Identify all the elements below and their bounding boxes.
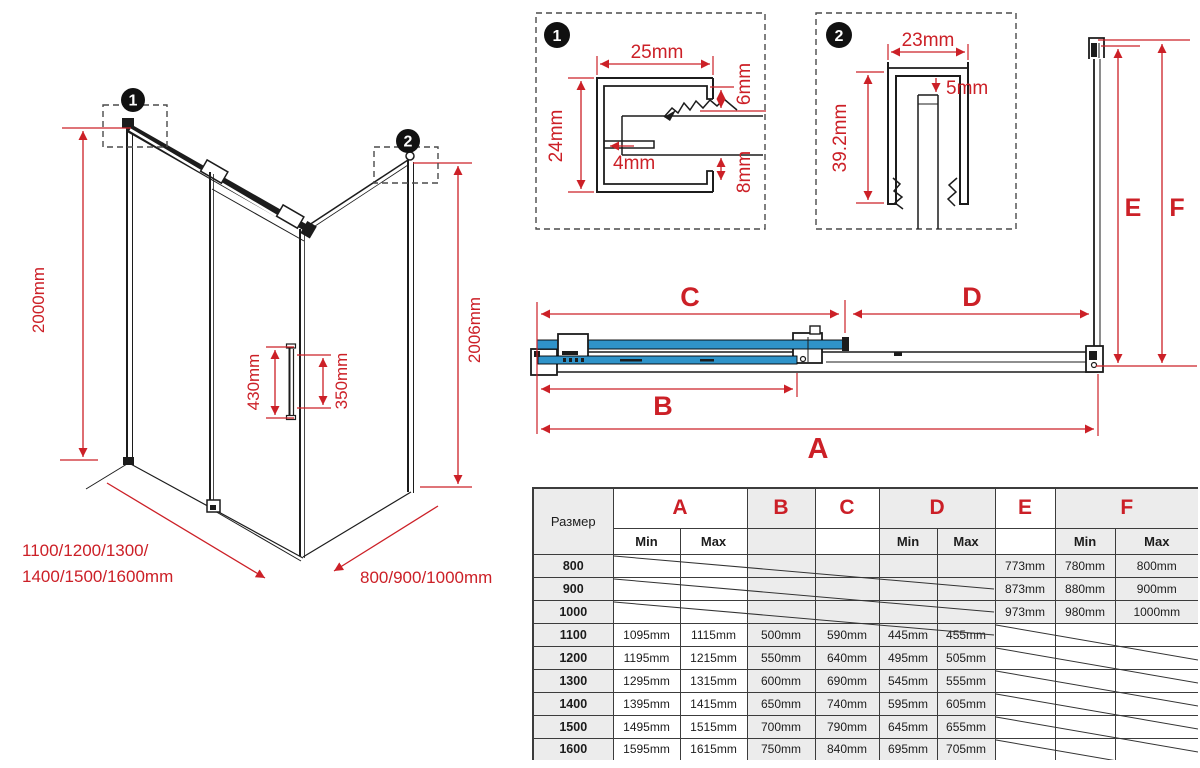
value-cell: 705mm (937, 738, 995, 760)
value-cell (995, 692, 1055, 715)
value-cell: 455mm (937, 623, 995, 646)
dim-d-label: D (962, 282, 982, 312)
size-label-cell: 1100 (533, 623, 613, 646)
value-cell: 495mm (879, 646, 937, 669)
value-cell: 1395mm (613, 692, 680, 715)
value-cell: 590mm (815, 623, 879, 646)
spec-table: Размер A B C D E F Min Max Min Max Min M… (532, 487, 1198, 760)
b-subheader (747, 528, 815, 554)
value-cell: 1315mm (680, 669, 747, 692)
plan-view-drawing: C D B A E F (520, 28, 1200, 472)
dim-2000-label: 2000mm (29, 267, 48, 333)
value-cell: 600mm (747, 669, 815, 692)
f-min-header: Min (1055, 528, 1115, 554)
value-cell: 1095mm (613, 623, 680, 646)
col-header-f: F (1055, 488, 1198, 528)
value-cell: 690mm (815, 669, 879, 692)
size-label-cell: 1300 (533, 669, 613, 692)
value-cell: 550mm (747, 646, 815, 669)
value-cell: 640mm (815, 646, 879, 669)
value-cell (747, 577, 815, 600)
value-cell (879, 577, 937, 600)
size-column-header: Размер (533, 488, 613, 554)
value-cell: 900mm (1115, 577, 1198, 600)
a-max-header: Max (680, 528, 747, 554)
shower-enclosure-spec-sheet: 2000mm 2006mm 430mm 350mm 1100/1200/1300… (0, 0, 1200, 768)
value-cell: 1595mm (613, 738, 680, 760)
value-cell: 700mm (747, 715, 815, 738)
value-cell: 1415mm (680, 692, 747, 715)
value-cell (995, 715, 1055, 738)
value-cell (937, 554, 995, 577)
value-cell (1055, 669, 1115, 692)
width-options-line2: 1400/1500/1600mm (22, 567, 173, 586)
value-cell: 790mm (815, 715, 879, 738)
col-header-a: A (613, 488, 747, 528)
svg-text:2: 2 (404, 134, 413, 151)
value-cell (815, 554, 879, 577)
value-cell: 1295mm (613, 669, 680, 692)
value-cell: 445mm (879, 623, 937, 646)
post-top-ball (406, 152, 414, 160)
d-max-header: Max (937, 528, 995, 554)
col-header-c: C (815, 488, 879, 528)
value-cell (1055, 738, 1115, 760)
dim-430-label: 430mm (244, 354, 263, 411)
table-row: 11001095mm1115mm500mm590mm445mm455mm (533, 623, 1198, 646)
value-cell (1115, 623, 1198, 646)
front-frame (86, 118, 317, 561)
value-cell: 545mm (879, 669, 937, 692)
col-header-e: E (995, 488, 1055, 528)
table-row: 1000973mm980mm1000mm (533, 600, 1198, 623)
value-cell: 1515mm (680, 715, 747, 738)
value-cell: 1215mm (680, 646, 747, 669)
dim-c-label: C (680, 282, 700, 312)
dimension-350mm: 350mm (297, 353, 351, 410)
size-label-cell: 1400 (533, 692, 613, 715)
size-label-cell: 1600 (533, 738, 613, 760)
a-min-header: Min (613, 528, 680, 554)
value-cell (680, 577, 747, 600)
value-cell (937, 577, 995, 600)
isometric-drawing: 2000mm 2006mm 430mm 350mm 1100/1200/1300… (0, 80, 525, 600)
bottom-cap (123, 457, 134, 465)
table-row: 900873mm880mm900mm (533, 577, 1198, 600)
col-header-b: B (747, 488, 815, 528)
dimension-2000mm: 2000mm (29, 128, 131, 460)
plan-dimensions: C D B A E F (537, 40, 1197, 465)
door-handle (287, 344, 296, 420)
table-row: 16001595mm1615mm750mm840mm695mm705mm (533, 738, 1198, 760)
value-cell (879, 554, 937, 577)
value-cell: 1195mm (613, 646, 680, 669)
value-cell (995, 669, 1055, 692)
value-cell: 980mm (1055, 600, 1115, 623)
value-cell (815, 600, 879, 623)
value-cell: 840mm (815, 738, 879, 760)
value-cell (1055, 692, 1115, 715)
value-cell (1115, 715, 1198, 738)
depth-options-label: 800/900/1000mm (360, 568, 492, 587)
value-cell (995, 623, 1055, 646)
value-cell: 880mm (1055, 577, 1115, 600)
value-cell (680, 554, 747, 577)
size-label-cell: 1000 (533, 600, 613, 623)
c-subheader (815, 528, 879, 554)
value-cell: 873mm (995, 577, 1055, 600)
value-cell (613, 577, 680, 600)
value-cell (879, 600, 937, 623)
dim-e-label: E (1125, 194, 1142, 222)
size-specification-table: Размер A B C D E F Min Max Min Max Min M… (532, 487, 1198, 760)
value-cell (1055, 623, 1115, 646)
value-cell (937, 600, 995, 623)
size-label-cell: 1500 (533, 715, 613, 738)
value-cell (747, 600, 815, 623)
value-cell: 1115mm (680, 623, 747, 646)
size-label-cell: 900 (533, 577, 613, 600)
f-max-header: Max (1115, 528, 1198, 554)
dimension-width-options: 1100/1200/1300/ 1400/1500/1600mm (22, 483, 265, 586)
rail-assembly (531, 326, 1098, 375)
size-label-cell: 1200 (533, 646, 613, 669)
table-row: 12001195mm1215mm550mm640mm495mm505mm (533, 646, 1198, 669)
dim-350-label: 350mm (332, 353, 351, 410)
width-options-line1: 1100/1200/1300/ (22, 541, 149, 560)
dim-f-label: F (1169, 194, 1184, 222)
value-cell: 645mm (879, 715, 937, 738)
value-cell (815, 577, 879, 600)
d-min-header: Min (879, 528, 937, 554)
value-cell: 740mm (815, 692, 879, 715)
col-header-d: D (879, 488, 995, 528)
detail-callout-1: 1 (103, 88, 167, 147)
side-panel-plan (1086, 38, 1104, 372)
table-row: 13001295mm1315mm600mm690mm545mm555mm (533, 669, 1198, 692)
value-cell (1115, 669, 1198, 692)
table-row: 14001395mm1415mm650mm740mm595mm605mm (533, 692, 1198, 715)
roller-bracket (201, 160, 228, 183)
bracket-knob (810, 326, 820, 334)
size-label-cell: 800 (533, 554, 613, 577)
value-cell: 655mm (937, 715, 995, 738)
value-cell (1115, 692, 1198, 715)
dim-a-label: A (808, 433, 829, 465)
value-cell (1055, 715, 1115, 738)
value-cell (995, 646, 1055, 669)
dim-2006-label: 2006mm (465, 297, 484, 363)
value-cell: 800mm (1115, 554, 1198, 577)
value-cell: 750mm (747, 738, 815, 760)
value-cell (680, 600, 747, 623)
dim-b-label: B (653, 391, 673, 421)
value-cell: 1495mm (613, 715, 680, 738)
value-cell: 605mm (937, 692, 995, 715)
value-cell (1115, 738, 1198, 760)
roller-bracket (277, 205, 304, 228)
value-cell (747, 554, 815, 577)
value-cell: 505mm (937, 646, 995, 669)
value-cell (1115, 646, 1198, 669)
glass-end-cap (842, 337, 849, 351)
value-cell: 780mm (1055, 554, 1115, 577)
dimension-2006mm: 2006mm (413, 163, 484, 487)
value-cell: 695mm (879, 738, 937, 760)
value-cell: 555mm (937, 669, 995, 692)
value-cell (613, 600, 680, 623)
table-row: 800773mm780mm800mm (533, 554, 1198, 577)
value-cell (613, 554, 680, 577)
value-cell: 1000mm (1115, 600, 1198, 623)
value-cell: 1615mm (680, 738, 747, 760)
dimension-depth-options: 800/900/1000mm (334, 506, 492, 587)
value-cell: 773mm (995, 554, 1055, 577)
value-cell: 500mm (747, 623, 815, 646)
e-subheader (995, 528, 1055, 554)
dimension-430mm: 430mm (244, 347, 294, 418)
svg-text:1: 1 (129, 93, 138, 110)
table-row: 15001495mm1515mm700mm790mm645mm655mm (533, 715, 1198, 738)
value-cell (1055, 646, 1115, 669)
value-cell: 595mm (879, 692, 937, 715)
value-cell: 973mm (995, 600, 1055, 623)
value-cell: 650mm (747, 692, 815, 715)
value-cell (995, 738, 1055, 760)
